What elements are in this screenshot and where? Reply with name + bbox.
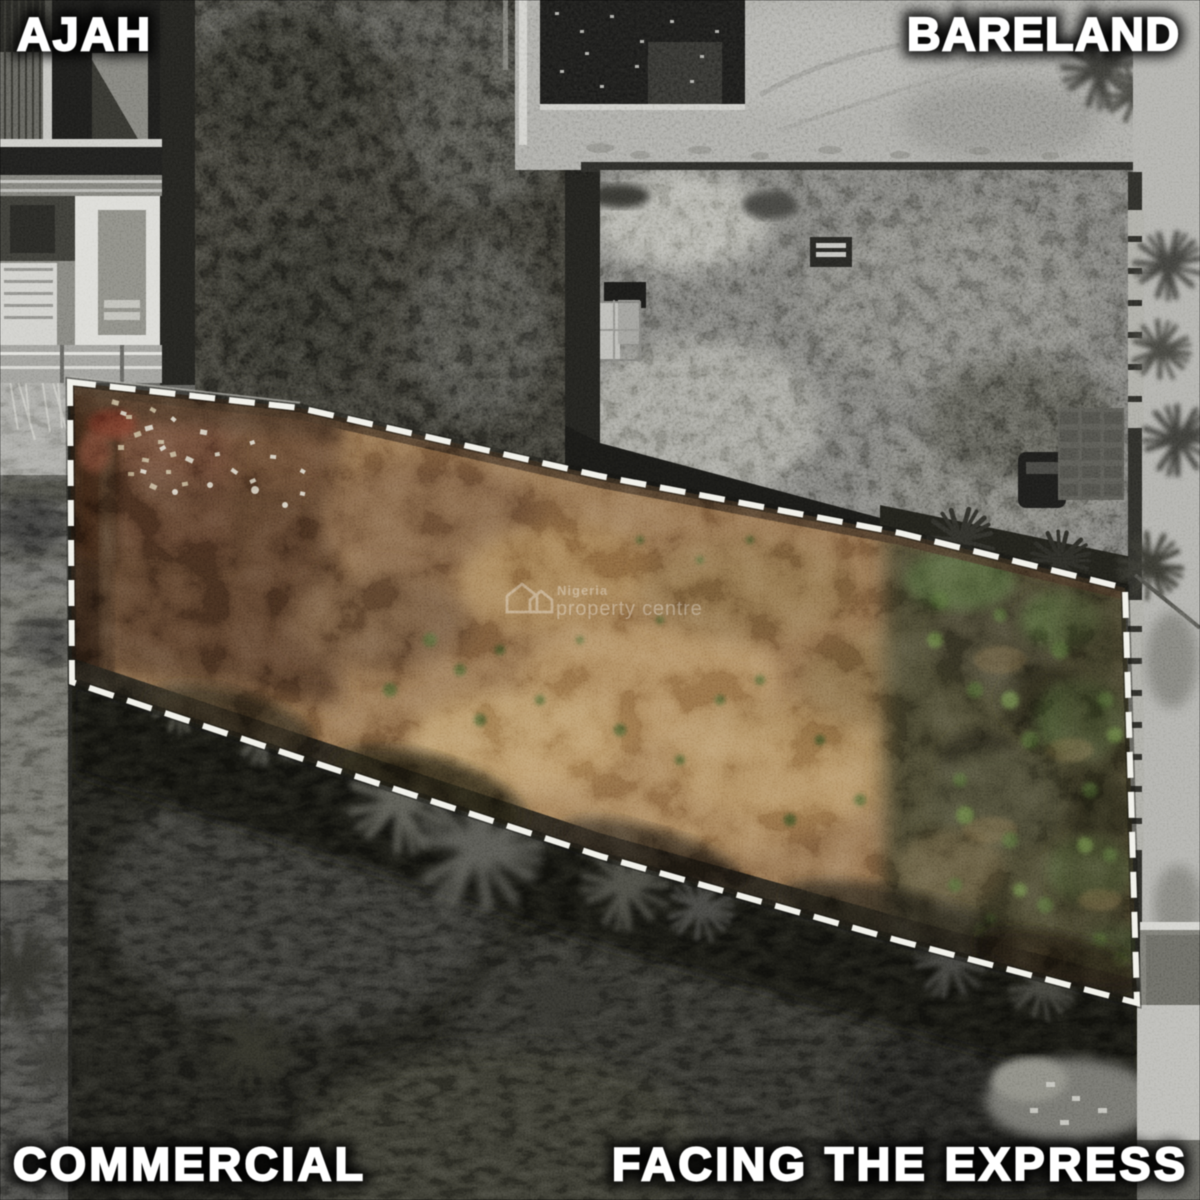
svg-text:BARELAND: BARELAND — [907, 8, 1179, 60]
svg-text:AJAH: AJAH — [17, 8, 150, 60]
svg-text:COMMERCIAL: COMMERCIAL — [13, 1138, 363, 1190]
svg-text:FACING THE EXPRESS: FACING THE EXPRESS — [612, 1138, 1185, 1190]
